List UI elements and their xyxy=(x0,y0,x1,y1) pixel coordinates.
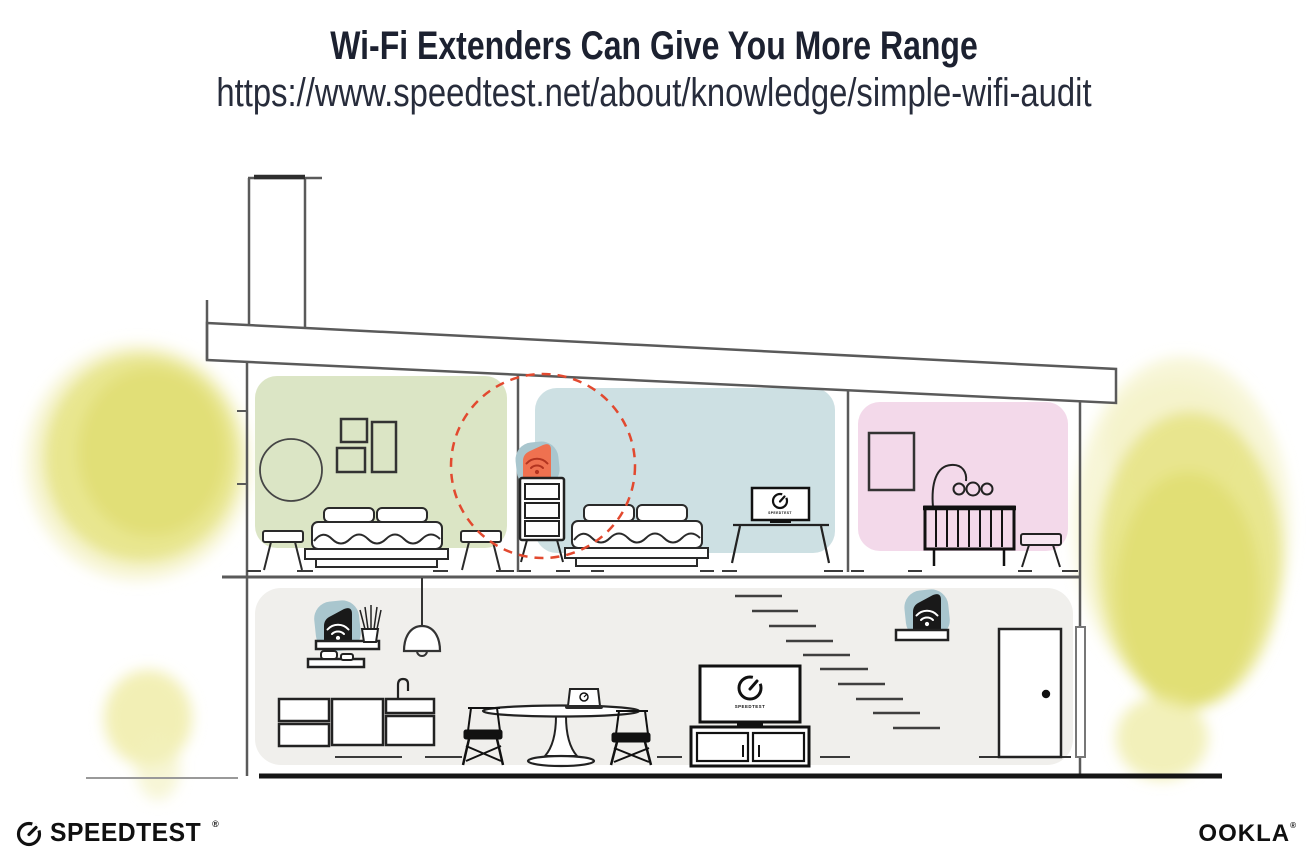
ookla-logo: OOKLA ® xyxy=(1198,820,1296,848)
hallway-shelf xyxy=(896,630,948,640)
ookla-wordmark: OOKLA xyxy=(1198,820,1290,848)
living-room-tv: SPEEDTEST xyxy=(700,666,800,726)
house-illustration: SPEEDTEST xyxy=(0,0,1308,861)
chimney xyxy=(248,177,322,330)
laptop xyxy=(565,689,603,709)
speedtest-trademark: ® xyxy=(212,819,219,829)
crib xyxy=(923,507,1016,566)
pink-room-bg xyxy=(858,402,1068,551)
foliage-right xyxy=(1074,357,1290,780)
bedroom-tv-label: SPEEDTEST xyxy=(768,511,792,515)
speedtest-gauge-icon xyxy=(15,819,43,847)
nightstand-right xyxy=(461,531,501,570)
ookla-trademark: ® xyxy=(1290,821,1296,830)
speedtest-wordmark: SPEEDTEST xyxy=(50,817,201,848)
bed xyxy=(565,505,708,566)
bedroom-tv: SPEEDTEST xyxy=(752,488,809,523)
media-console xyxy=(691,727,809,766)
downspout xyxy=(1076,627,1085,757)
infographic-page: Wi-Fi Extenders Can Give You More Range … xyxy=(0,0,1308,861)
living-room-tv-label: SPEEDTEST xyxy=(735,704,766,709)
bed xyxy=(305,508,448,567)
nightstand-left xyxy=(263,531,303,570)
door-knob xyxy=(1042,690,1050,698)
foliage-left xyxy=(26,344,250,800)
speedtest-logo: SPEEDTEST ® xyxy=(15,817,219,848)
